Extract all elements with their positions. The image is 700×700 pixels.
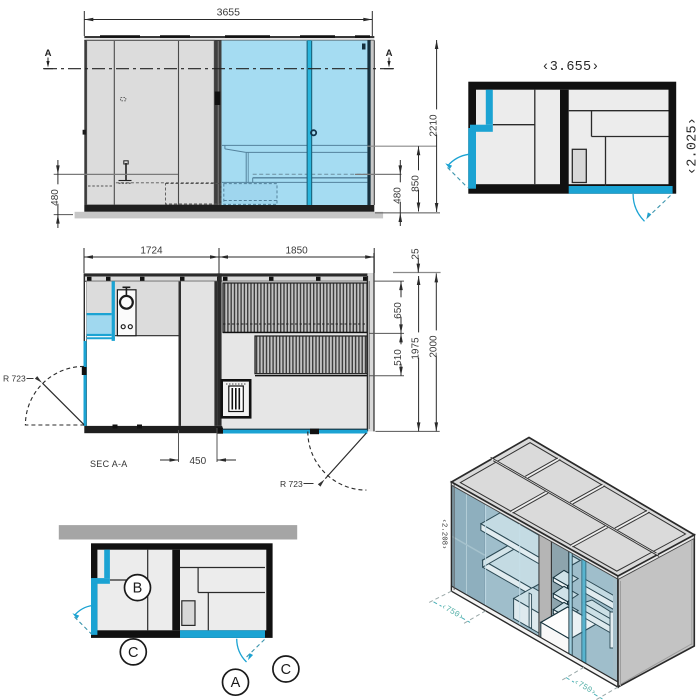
svg-text:1975: 1975 [411, 337, 422, 360]
svg-text:450: 450 [189, 456, 206, 467]
svg-text:2210: 2210 [429, 114, 440, 137]
svg-text:480: 480 [50, 189, 61, 206]
svg-text:R 723: R 723 [3, 374, 26, 384]
svg-text:A: A [45, 48, 52, 59]
svg-text:C: C [281, 662, 291, 678]
svg-text:850: 850 [411, 175, 422, 192]
svg-text:‹2.208›: ‹2.208› [440, 518, 448, 549]
svg-text:1724: 1724 [140, 246, 163, 257]
svg-text:‹2.025›: ‹2.025› [686, 117, 700, 175]
svg-text:25: 25 [410, 248, 421, 260]
svg-text:1850: 1850 [285, 246, 308, 257]
svg-text:480: 480 [392, 187, 403, 204]
svg-text:2000: 2000 [428, 335, 439, 358]
svg-text:B: B [133, 581, 143, 597]
svg-text:510: 510 [393, 349, 404, 366]
svg-text:‹3.655›: ‹3.655› [541, 60, 599, 75]
svg-text:A: A [386, 48, 393, 59]
svg-text:650: 650 [393, 302, 404, 319]
svg-text:R 723: R 723 [280, 479, 303, 489]
svg-text:SEC A-A: SEC A-A [90, 459, 128, 469]
svg-text:3655: 3655 [217, 7, 241, 19]
svg-text:A: A [231, 675, 241, 691]
svg-text:C: C [128, 645, 138, 661]
